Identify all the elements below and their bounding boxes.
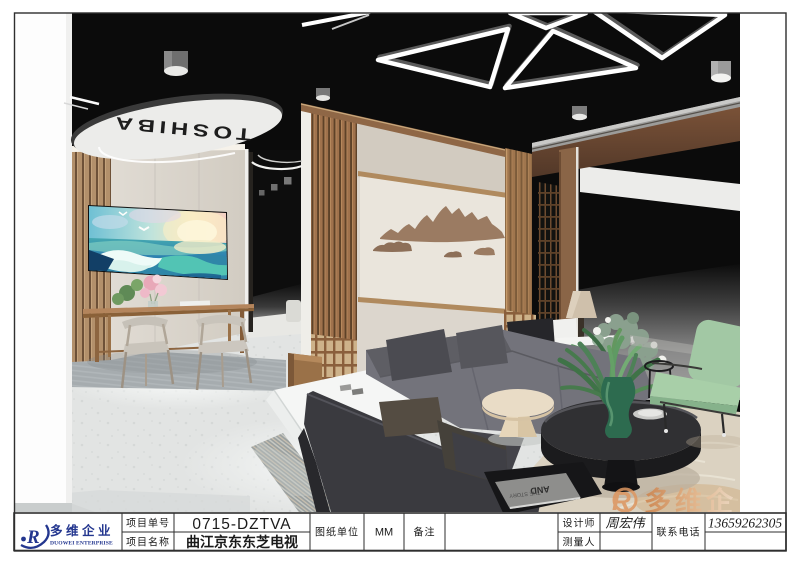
svg-text:项目名称: 项目名称 [126, 536, 170, 549]
svg-text:曲江京东东芝电视: 曲江京东东芝电视 [186, 534, 298, 550]
svg-text:周宏伟: 周宏伟 [605, 516, 646, 531]
svg-text:R: R [26, 527, 40, 548]
svg-text:多维企业: 多维企业 [50, 523, 114, 538]
svg-text:项目单号: 项目单号 [126, 518, 170, 530]
svg-text:测量人: 测量人 [563, 536, 596, 549]
svg-text:13659262305: 13659262305 [708, 516, 783, 531]
svg-text:MM: MM [375, 527, 393, 539]
svg-text:设计师: 设计师 [563, 517, 596, 530]
svg-text:备注: 备注 [414, 526, 436, 539]
svg-text:联系电话: 联系电话 [657, 526, 701, 539]
svg-text:R: R [612, 486, 631, 516]
svg-text:0715-DZTVA: 0715-DZTVA [192, 516, 291, 533]
svg-text:图纸单位: 图纸单位 [315, 526, 359, 539]
svg-text:DUOWEI ENTERPRISE: DUOWEI ENTERPRISE [50, 541, 113, 547]
